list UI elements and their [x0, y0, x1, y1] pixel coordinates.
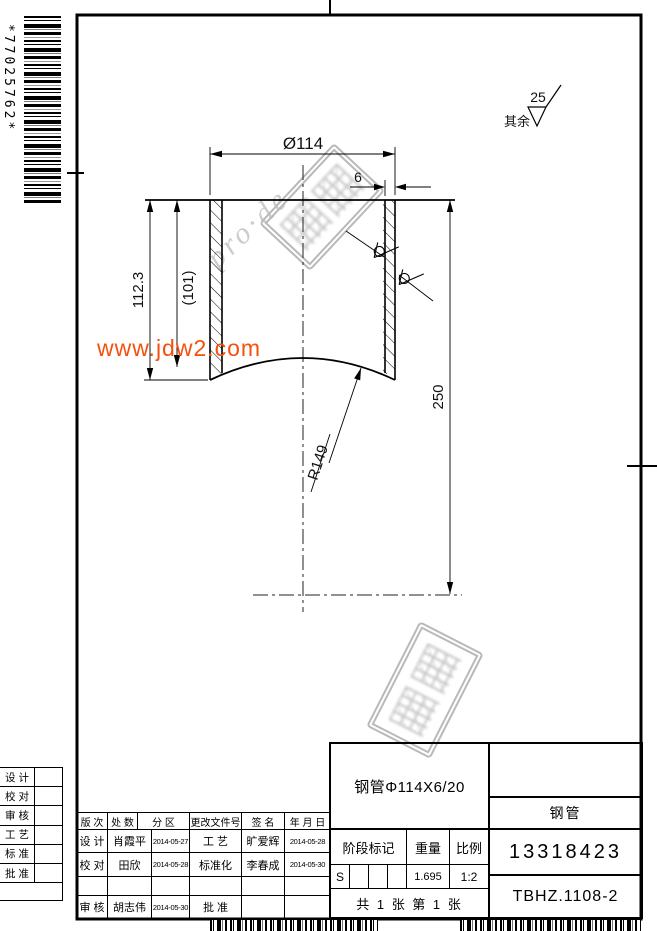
- finish-leader-outer: [399, 275, 433, 301]
- signature-date: 2014-05-30: [285, 853, 330, 876]
- margin-label: 审 核: [0, 806, 35, 824]
- centering-ticks: [67, 0, 657, 466]
- material-spec: 钢管Φ114X6/20: [331, 744, 488, 830]
- weight-value: 1.695: [407, 865, 450, 888]
- rev-header: 分 区: [138, 813, 190, 829]
- part-name: 钢管: [490, 798, 641, 830]
- barcode-text-vertical: *77025762*: [1, 24, 16, 209]
- role-label: 标准化: [190, 853, 242, 876]
- margin-label: 工 艺: [0, 826, 35, 844]
- margin-value-empty: [35, 864, 62, 882]
- stage-mark-label: 阶段标记: [331, 830, 407, 864]
- dim-ref-height: (101): [180, 270, 197, 305]
- arrowhead: [210, 151, 222, 157]
- scale-label: 比例: [450, 830, 488, 864]
- empty-cell: [77, 877, 108, 895]
- arrowhead: [383, 151, 395, 157]
- margin-value-empty: [35, 806, 62, 824]
- signature-name: 旷爱辉: [242, 830, 285, 852]
- rev-header: 年 月 日: [285, 813, 330, 829]
- signature-date: 2014-05-28: [152, 853, 190, 876]
- signature-date: 2014-05-27: [152, 830, 190, 852]
- dim-diameter: Ø114: [283, 134, 323, 153]
- margin-empty-row: [0, 883, 62, 900]
- signature-name: 李春成: [242, 853, 285, 876]
- stage-value: S: [331, 865, 350, 888]
- arrowhead: [374, 184, 385, 190]
- rev-header: 处 数: [108, 813, 138, 829]
- weight-label: 重量: [407, 830, 450, 864]
- revision-table: 版 次 处 数 分 区 更改文件号 签 名 年 月 日 设 计 肖霞平 2014…: [77, 812, 330, 918]
- arrowhead: [174, 200, 180, 212]
- roughness-value: 25: [530, 89, 546, 105]
- margin-label: 校 对: [0, 787, 35, 805]
- no-removal-finish-icon: [394, 262, 424, 293]
- role-label: 批 准: [190, 896, 242, 918]
- role-label: 工 艺: [190, 830, 242, 852]
- radius-leader: [329, 368, 361, 463]
- dim-radius: R149: [305, 443, 332, 482]
- arrowhead: [354, 367, 364, 380]
- signature-name: 田欣: [108, 853, 152, 876]
- scale-value: 1:2: [450, 865, 488, 888]
- barcode-bottom-right: [460, 920, 641, 931]
- rev-header: 签 名: [242, 813, 285, 829]
- arrowhead: [447, 200, 453, 212]
- title-block: 钢管Φ114X6/20 阶段标记 重量 比例 S 1.695 1:2 共 1 张…: [329, 742, 643, 919]
- margin-signature-block: 设 计 校 对 审 核 工 艺 标 准 批 准: [0, 767, 63, 901]
- signature-date: [285, 896, 330, 918]
- empty-cell: [285, 877, 330, 895]
- arrowhead: [447, 582, 453, 594]
- rev-header: 版 次: [77, 813, 108, 829]
- margin-value-empty: [35, 845, 62, 863]
- finish-leader-inner: [346, 231, 384, 257]
- margin-value-empty: [35, 768, 62, 786]
- empty-cell: [242, 877, 285, 895]
- role-label: 校 对: [77, 853, 108, 876]
- role-label: 审 核: [77, 896, 108, 918]
- roughness-note-label: 其余: [504, 114, 530, 129]
- arrowhead: [147, 368, 153, 380]
- stage-cell-empty: [388, 865, 407, 888]
- company-cell-empty: [490, 744, 641, 798]
- role-label: 设 计: [77, 830, 108, 852]
- dim-height: 112.3: [130, 272, 147, 308]
- arrowhead: [395, 184, 406, 190]
- signature-date: 2014-05-30: [152, 896, 190, 918]
- stage-cell-empty: [369, 865, 388, 888]
- empty-cell: [152, 877, 190, 895]
- arrowhead: [147, 200, 153, 212]
- dim-length: 250: [430, 384, 447, 409]
- signature-name: 胡志伟: [108, 896, 152, 918]
- signature-name: 肖霞平: [108, 830, 152, 852]
- signature-date: 2014-05-28: [285, 830, 330, 852]
- stage-cell-empty: [350, 865, 369, 888]
- empty-cell: [108, 877, 152, 895]
- margin-label: 批 准: [0, 864, 35, 882]
- sheet-count: 共 1 张 第 1 张: [331, 889, 488, 917]
- barcode-bottom-left: [210, 920, 378, 931]
- document-number: TBHZ.1108-2: [490, 876, 641, 917]
- site-watermark: www.jdw2.com: [97, 335, 261, 362]
- margin-value-empty: [35, 826, 62, 844]
- margin-label: 标 准: [0, 845, 35, 863]
- empty-cell: [190, 877, 242, 895]
- signature-name: [242, 896, 285, 918]
- rev-header: 更改文件号: [190, 813, 242, 829]
- dim-thickness: 6: [354, 169, 362, 185]
- barcode-vertical: [24, 16, 61, 205]
- margin-value-empty: [35, 787, 62, 805]
- drawing-number: 13318423: [490, 830, 641, 876]
- margin-label: 设 计: [0, 768, 35, 786]
